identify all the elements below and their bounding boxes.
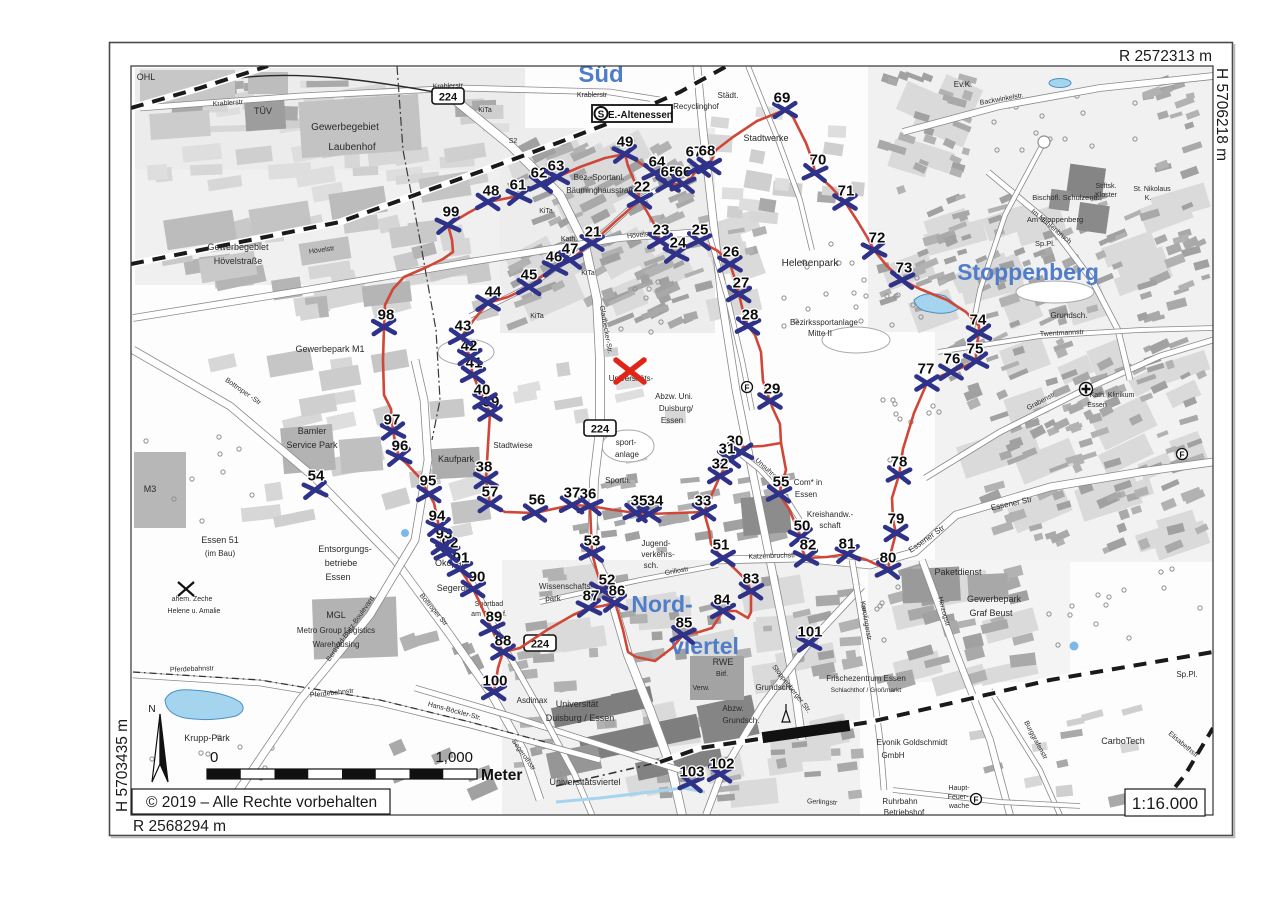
- svg-text:park: park: [545, 594, 562, 603]
- svg-text:MGL: MGL: [326, 610, 346, 620]
- svg-text:Jugend-: Jugend-: [642, 539, 671, 548]
- svg-text:Mitte II: Mitte II: [808, 329, 832, 338]
- svg-text:Meter: Meter: [481, 767, 522, 784]
- svg-text:68: 68: [699, 143, 716, 160]
- svg-text:anlage: anlage: [615, 450, 640, 459]
- svg-text:Graf Beust: Graf Beust: [969, 608, 1013, 618]
- svg-text:Essen: Essen: [1087, 402, 1107, 409]
- svg-text:Bezirkssportanlage: Bezirkssportanlage: [790, 318, 859, 327]
- svg-text:97: 97: [384, 412, 401, 429]
- svg-text:38: 38: [476, 459, 493, 476]
- svg-text:Bischöfl. Schulzentr.: Bischöfl. Schulzentr.: [1032, 193, 1100, 202]
- svg-text:73: 73: [896, 260, 913, 277]
- svg-text:82: 82: [800, 537, 817, 554]
- svg-text:29: 29: [764, 381, 781, 398]
- svg-text:44: 44: [485, 284, 502, 301]
- svg-text:86: 86: [609, 583, 626, 600]
- svg-text:Essen: Essen: [795, 490, 817, 499]
- svg-text:Schlachthof / Großmarkt: Schlachthof / Großmarkt: [831, 687, 902, 694]
- svg-text:50: 50: [794, 518, 811, 535]
- svg-text:E.-Altenessen: E.-Altenessen: [608, 110, 673, 121]
- svg-text:37: 37: [564, 485, 581, 502]
- svg-text:Kloster: Kloster: [1095, 192, 1117, 199]
- svg-text:Ruhrbahn: Ruhrbahn: [882, 797, 917, 806]
- svg-text:Krupp-Park: Krupp-Park: [184, 733, 230, 743]
- svg-text:23: 23: [653, 222, 670, 239]
- svg-text:224: 224: [591, 424, 610, 436]
- svg-text:98: 98: [378, 307, 395, 324]
- svg-text:N: N: [148, 704, 155, 715]
- svg-text:schaft: schaft: [819, 521, 841, 530]
- svg-text:Bitf.: Bitf.: [716, 671, 728, 678]
- svg-text:70: 70: [810, 152, 827, 169]
- svg-text:Essen 51: Essen 51: [201, 535, 239, 545]
- svg-text:72: 72: [869, 230, 886, 247]
- svg-text:56: 56: [529, 492, 546, 509]
- svg-text:53: 53: [584, 533, 601, 550]
- svg-text:verkehrs-: verkehrs-: [641, 550, 675, 559]
- svg-text:63: 63: [548, 158, 565, 175]
- svg-text:Städt.: Städt.: [718, 91, 739, 100]
- svg-text:M3: M3: [144, 484, 157, 494]
- svg-text:96: 96: [392, 438, 409, 455]
- svg-text:24: 24: [670, 235, 687, 252]
- svg-text:Sp.Pl.: Sp.Pl.: [1176, 670, 1197, 679]
- svg-text:Grundsch.: Grundsch.: [723, 716, 760, 725]
- svg-text:H 5706218 m: H 5706218 m: [1213, 68, 1230, 161]
- svg-text:95: 95: [420, 473, 437, 490]
- svg-text:GmbH: GmbH: [881, 751, 904, 760]
- svg-text:79: 79: [888, 511, 905, 528]
- svg-text:KiTa: KiTa: [530, 313, 544, 320]
- svg-text:(im Bau): (im Bau): [205, 549, 236, 558]
- svg-text:Gewerbepark M1: Gewerbepark M1: [295, 344, 364, 354]
- svg-text:Helene u. Amalie: Helene u. Amalie: [168, 608, 221, 615]
- svg-text:Stadtwerke: Stadtwerke: [743, 133, 788, 143]
- svg-text:100: 100: [482, 673, 507, 690]
- svg-text:21: 21: [585, 224, 602, 241]
- svg-text:26: 26: [723, 244, 740, 261]
- svg-text:Metro Group Logistics: Metro Group Logistics: [297, 626, 375, 635]
- svg-text:103: 103: [679, 764, 704, 781]
- svg-text:wache: wache: [948, 803, 969, 810]
- svg-text:Laubenhof: Laubenhof: [328, 142, 375, 153]
- svg-text:Essen: Essen: [661, 416, 683, 425]
- svg-text:KiTa: KiTa: [539, 208, 553, 215]
- svg-text:Ev.K.: Ev.K.: [954, 80, 973, 89]
- svg-text:S2: S2: [509, 138, 518, 145]
- svg-text:betriebe: betriebe: [325, 558, 358, 568]
- svg-text:Stoppenberg: Stoppenberg: [957, 259, 1099, 285]
- svg-text:OHL: OHL: [137, 72, 156, 82]
- svg-text:Gewerbegebiet: Gewerbegebiet: [207, 242, 269, 252]
- svg-text:87: 87: [583, 588, 600, 605]
- svg-text:Stadtwiese: Stadtwiese: [493, 441, 533, 450]
- svg-text:62: 62: [531, 165, 548, 182]
- svg-text:H 5703435 m: H 5703435 m: [114, 719, 131, 812]
- svg-text:Krablerstr: Krablerstr: [577, 92, 608, 99]
- svg-text:R 2568294 m: R 2568294 m: [133, 818, 226, 835]
- svg-text:Kath. Klinikum: Kath. Klinikum: [1090, 392, 1135, 399]
- svg-text:1:16.000: 1:16.000: [1132, 794, 1198, 813]
- svg-text:Abzw.: Abzw.: [722, 704, 743, 713]
- svg-text:Universität: Universität: [556, 699, 599, 709]
- svg-text:35: 35: [631, 493, 648, 510]
- svg-text:Entsorgungs-: Entsorgungs-: [318, 544, 372, 554]
- svg-text:Gewerbepark: Gewerbepark: [967, 594, 1022, 604]
- svg-text:74: 74: [970, 312, 987, 329]
- svg-text:St. Nikolaus: St. Nikolaus: [1133, 186, 1171, 193]
- svg-text:F: F: [1179, 450, 1184, 460]
- svg-text:27: 27: [733, 275, 750, 292]
- svg-text:sport-: sport-: [616, 438, 637, 447]
- svg-text:Nord-: Nord-: [631, 591, 692, 617]
- svg-text:Gewerbegebiet: Gewerbegebiet: [311, 122, 379, 133]
- svg-text:25: 25: [692, 222, 709, 239]
- svg-text:89: 89: [486, 609, 503, 626]
- svg-text:51: 51: [713, 537, 730, 554]
- svg-text:Bamler: Bamler: [298, 426, 327, 436]
- svg-text:Duisburg / Essen: Duisburg / Essen: [546, 713, 615, 723]
- svg-text:101: 101: [797, 624, 822, 641]
- svg-text:Paketdienst: Paketdienst: [934, 567, 982, 577]
- svg-text:81: 81: [839, 536, 856, 553]
- svg-text:54: 54: [308, 468, 325, 485]
- svg-text:49: 49: [617, 134, 634, 151]
- svg-text:F: F: [973, 795, 978, 805]
- svg-text:Recyclinghof: Recyclinghof: [673, 102, 720, 111]
- svg-text:75: 75: [967, 341, 984, 358]
- svg-text:KiTa: KiTa: [581, 270, 595, 277]
- svg-text:71: 71: [838, 183, 855, 200]
- svg-text:Feuer-: Feuer-: [948, 794, 969, 801]
- svg-text:TÜV: TÜV: [254, 106, 272, 116]
- svg-text:78: 78: [891, 454, 908, 471]
- svg-text:Verw.: Verw.: [692, 685, 709, 692]
- svg-text:Helenenpark: Helenenpark: [782, 258, 840, 269]
- svg-text:0: 0: [210, 749, 218, 766]
- svg-text:KiTa: KiTa: [478, 107, 492, 114]
- svg-text:Bäuminghausstraße: Bäuminghausstraße: [566, 186, 638, 195]
- svg-text:33: 33: [695, 493, 712, 510]
- svg-text:Frischezentrum Essen: Frischezentrum Essen: [826, 674, 906, 683]
- svg-text:Hövelstraße: Hövelstraße: [214, 256, 263, 266]
- svg-text:Sp.Pl.: Sp.Pl.: [1035, 239, 1055, 248]
- svg-text:47: 47: [562, 241, 579, 258]
- svg-text:80: 80: [880, 550, 897, 567]
- svg-text:85: 85: [676, 615, 693, 632]
- svg-text:28: 28: [742, 307, 759, 324]
- svg-text:Kaufpark: Kaufpark: [438, 454, 475, 464]
- svg-text:Essen: Essen: [325, 572, 350, 582]
- svg-text:22: 22: [634, 179, 651, 196]
- svg-text:Com* in: Com* in: [794, 478, 822, 487]
- svg-text:Sporth.: Sporth.: [605, 476, 631, 485]
- svg-text:CarboTech: CarboTech: [1101, 736, 1145, 746]
- svg-text:57: 57: [482, 484, 499, 501]
- svg-text:Service Park: Service Park: [286, 440, 338, 450]
- svg-text:224: 224: [439, 92, 458, 104]
- svg-text:61: 61: [510, 177, 527, 194]
- svg-text:K.: K.: [1145, 195, 1152, 202]
- svg-text:F: F: [744, 383, 749, 393]
- svg-text:83: 83: [743, 571, 760, 588]
- svg-text:Stiftsk.: Stiftsk.: [1095, 183, 1116, 190]
- svg-text:99: 99: [443, 204, 460, 221]
- svg-text:94: 94: [429, 508, 446, 525]
- svg-text:Bez.-Sportanl.: Bez.-Sportanl.: [574, 173, 625, 182]
- svg-text:76: 76: [944, 351, 961, 368]
- svg-text:© 2019 – Alle Rechte vorbehalt: © 2019 – Alle Rechte vorbehalten: [146, 794, 377, 811]
- svg-text:Universitätsviertel: Universitätsviertel: [549, 777, 620, 787]
- svg-text:84: 84: [714, 592, 731, 609]
- svg-text:Grundsch.: Grundsch.: [1051, 311, 1088, 320]
- svg-text:43: 43: [455, 318, 472, 335]
- svg-text:102: 102: [709, 756, 734, 773]
- svg-text:Asdimax: Asdimax: [517, 696, 548, 705]
- svg-text:55: 55: [773, 474, 790, 491]
- svg-text:32: 32: [712, 456, 729, 473]
- svg-text:ahem. Zeche: ahem. Zeche: [172, 596, 213, 603]
- svg-text:sch.: sch.: [644, 561, 659, 570]
- svg-text:R 2572313 m: R 2572313 m: [1119, 48, 1212, 65]
- svg-text:Duisburg/: Duisburg/: [659, 404, 694, 413]
- svg-text:45: 45: [521, 267, 538, 284]
- svg-text:77: 77: [918, 361, 935, 378]
- svg-text:48: 48: [483, 183, 500, 200]
- svg-text:S: S: [598, 110, 605, 121]
- svg-text:69: 69: [774, 90, 791, 107]
- svg-text:Kreishandw.-: Kreishandw.-: [807, 510, 854, 519]
- svg-text:1,000: 1,000: [435, 749, 473, 766]
- svg-text:Evonik Goldschmidt: Evonik Goldschmidt: [877, 738, 948, 747]
- svg-text:Abzw. Uni.: Abzw. Uni.: [655, 392, 693, 401]
- svg-text:Haupt-: Haupt-: [948, 785, 970, 792]
